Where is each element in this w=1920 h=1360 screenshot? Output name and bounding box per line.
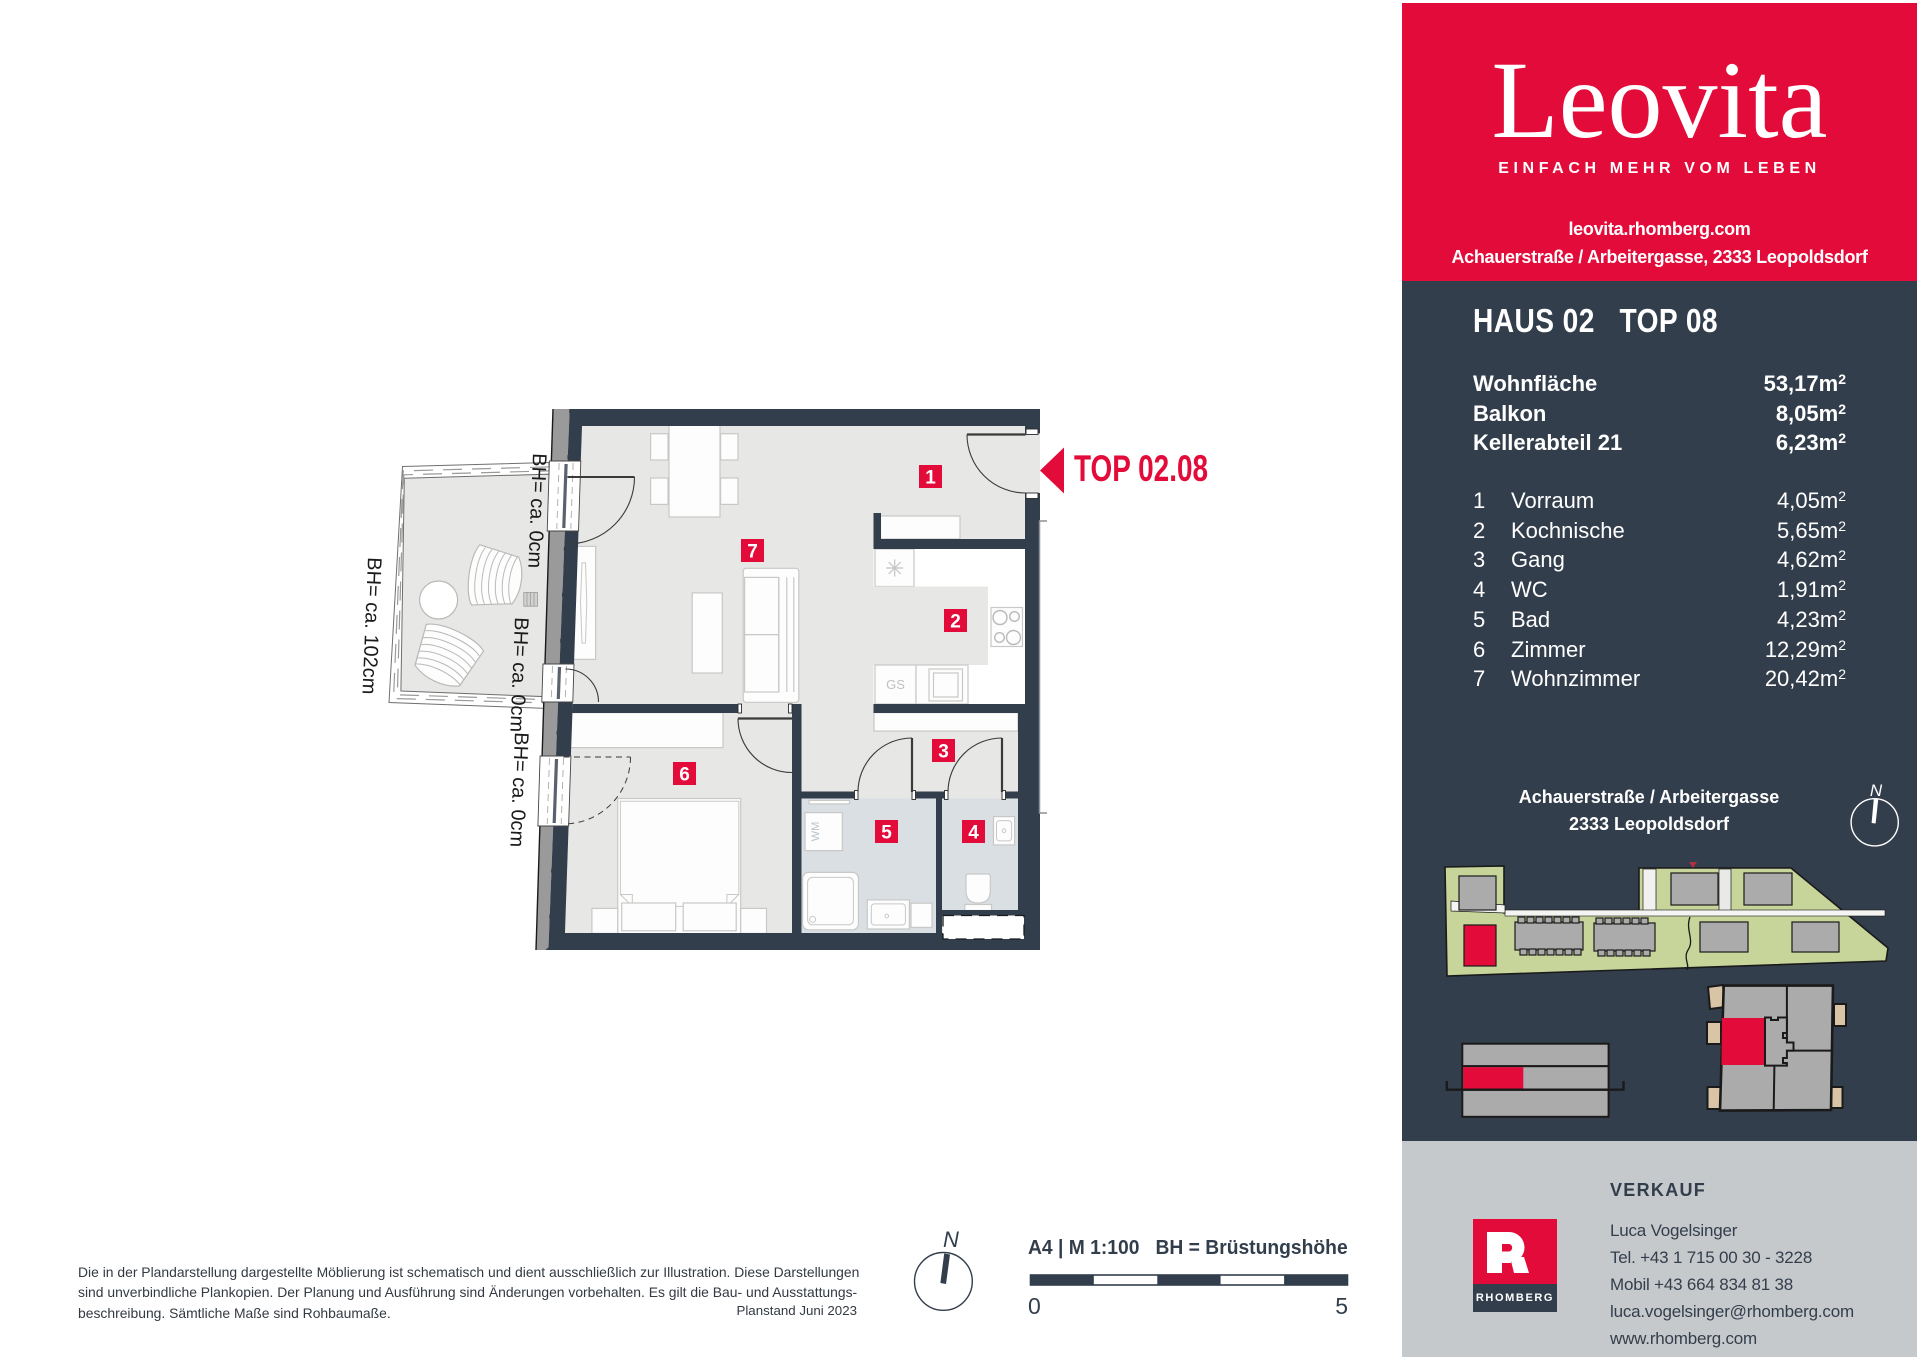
svg-text:N: N [943,1227,959,1252]
svg-text:1: 1 [925,468,936,489]
svg-text:BH= ca. 0cm: BH= ca. 0cm [505,732,532,848]
svg-text:2: 2 [950,612,961,633]
svg-text:WM: WM [810,822,822,842]
svg-text:5: 5 [881,823,892,844]
svg-text:GS: GS [886,677,905,692]
svg-text:6: 6 [679,765,690,786]
svg-text:N: N [1870,781,1883,800]
svg-text:BH= ca. 0cm: BH= ca. 0cm [505,617,532,733]
svg-text:BH= ca. 0cm: BH= ca. 0cm [523,453,550,569]
svg-text:7: 7 [747,542,758,563]
svg-text:4: 4 [968,823,979,844]
svg-text:3: 3 [938,742,949,763]
svg-text:TOP 02.08: TOP 02.08 [1074,448,1208,489]
svg-text:BH= ca. 102cm: BH= ca. 102cm [357,557,384,695]
